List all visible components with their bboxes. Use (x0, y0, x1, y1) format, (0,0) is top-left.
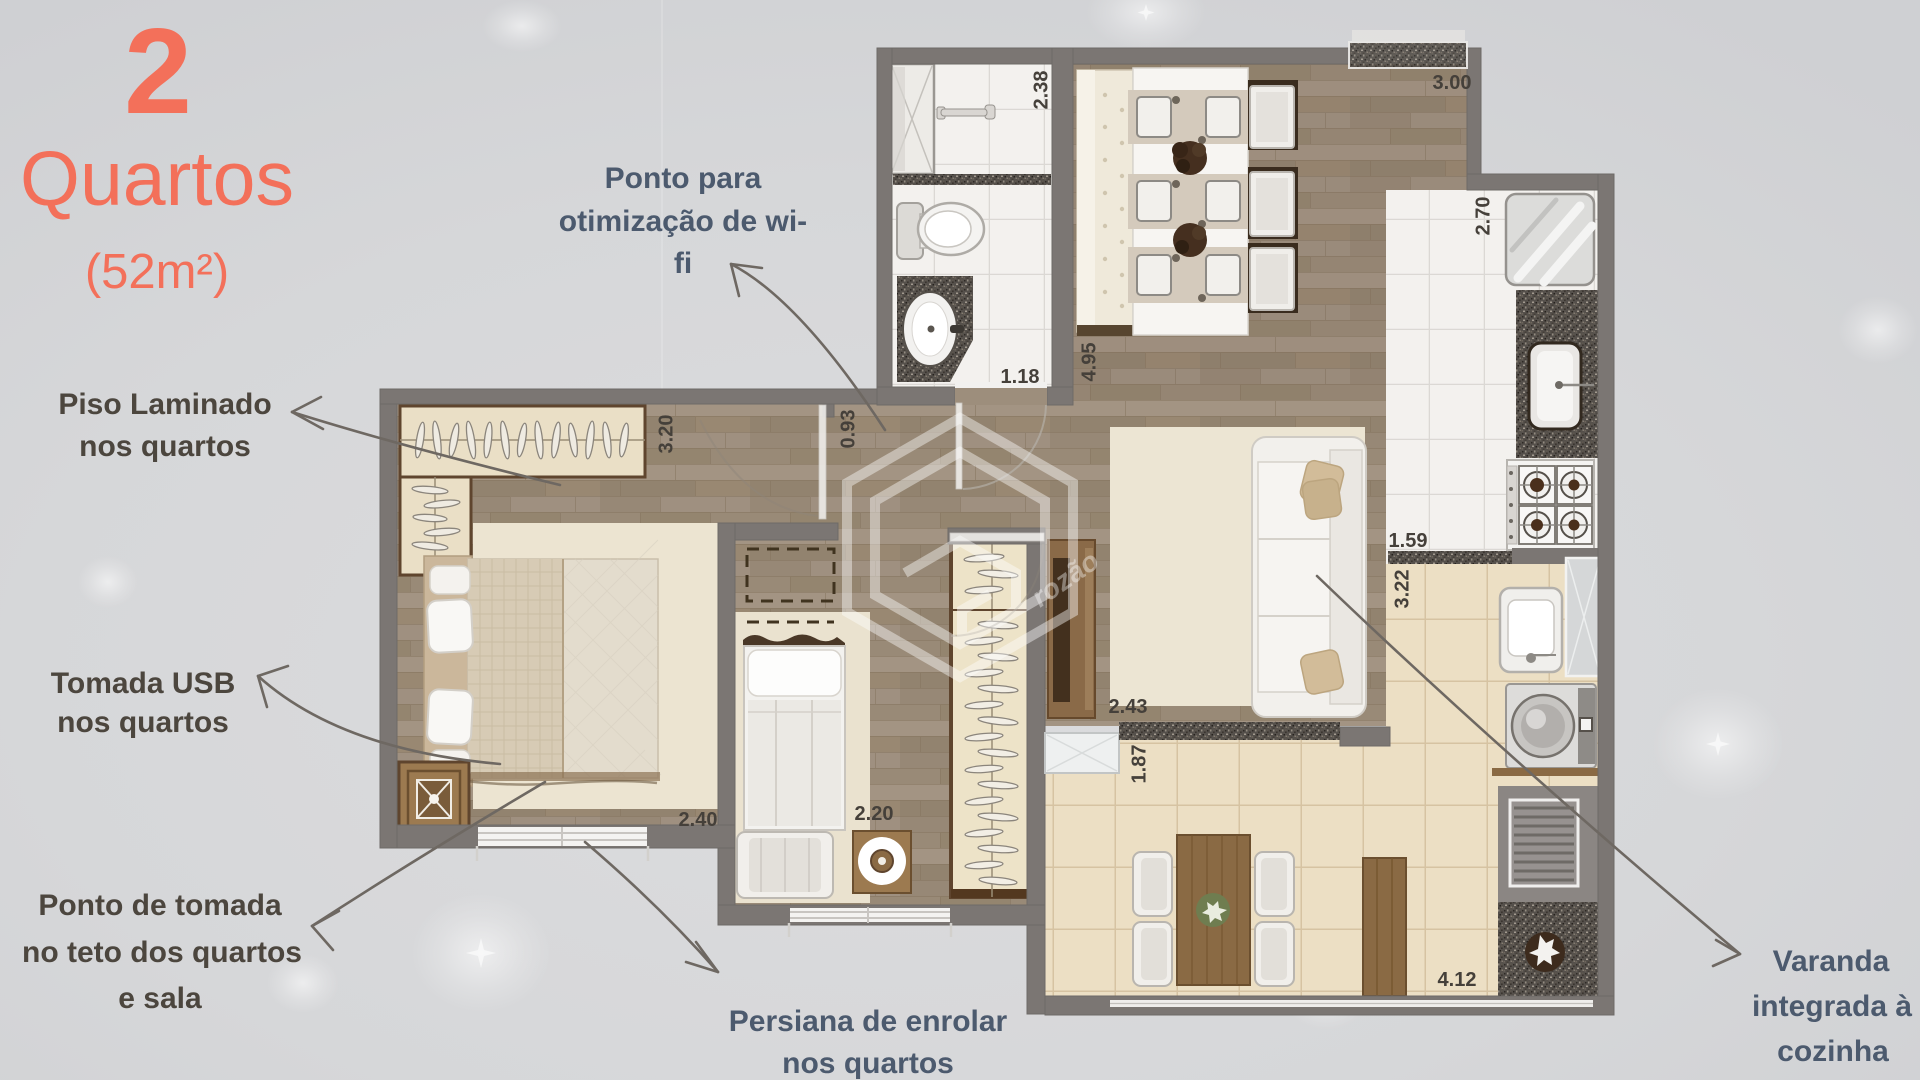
svg-text:Persiana de enrolar: Persiana de enrolar (729, 1005, 1008, 1038)
svg-text:3.20: 3.20 (655, 415, 677, 454)
svg-text:integrada à: integrada à (1752, 990, 1912, 1023)
svg-text:nos quartos: nos quartos (79, 430, 251, 463)
svg-text:e sala: e sala (118, 982, 202, 1015)
svg-text:2.40: 2.40 (679, 809, 718, 831)
svg-text:2.43: 2.43 (1109, 696, 1148, 718)
svg-text:3.22: 3.22 (1391, 570, 1413, 609)
svg-text:2: 2 (124, 3, 192, 139)
svg-text:4.95: 4.95 (1078, 343, 1100, 382)
svg-text:2.20: 2.20 (855, 803, 894, 825)
svg-text:nos quartos: nos quartos (57, 706, 229, 739)
svg-text:Quartos: Quartos (20, 136, 294, 222)
svg-text:Ponto de tomada: Ponto de tomada (38, 889, 282, 922)
svg-text:Varanda: Varanda (1773, 945, 1890, 978)
svg-text:Tomada USB: Tomada USB (51, 667, 235, 700)
svg-text:fi: fi (674, 247, 692, 280)
svg-text:2.70: 2.70 (1472, 197, 1494, 236)
svg-text:Piso Laminado: Piso Laminado (58, 388, 271, 421)
svg-text:2.38: 2.38 (1030, 71, 1052, 110)
svg-text:otimização de wi-: otimização de wi- (559, 205, 807, 238)
svg-text:no teto dos quartos: no teto dos quartos (22, 936, 302, 969)
svg-text:0.93: 0.93 (837, 410, 859, 449)
svg-text:Ponto para: Ponto para (605, 162, 762, 195)
svg-text:nos quartos: nos quartos (782, 1047, 954, 1080)
svg-text:1.59: 1.59 (1389, 530, 1428, 552)
svg-text:4.12: 4.12 (1438, 969, 1477, 991)
svg-text:1.18: 1.18 (1001, 366, 1040, 388)
svg-text:3.00: 3.00 (1433, 72, 1472, 94)
svg-text:1.87: 1.87 (1128, 745, 1150, 784)
svg-text:cozinha: cozinha (1777, 1035, 1889, 1068)
svg-text:(52m²): (52m²) (85, 245, 229, 299)
